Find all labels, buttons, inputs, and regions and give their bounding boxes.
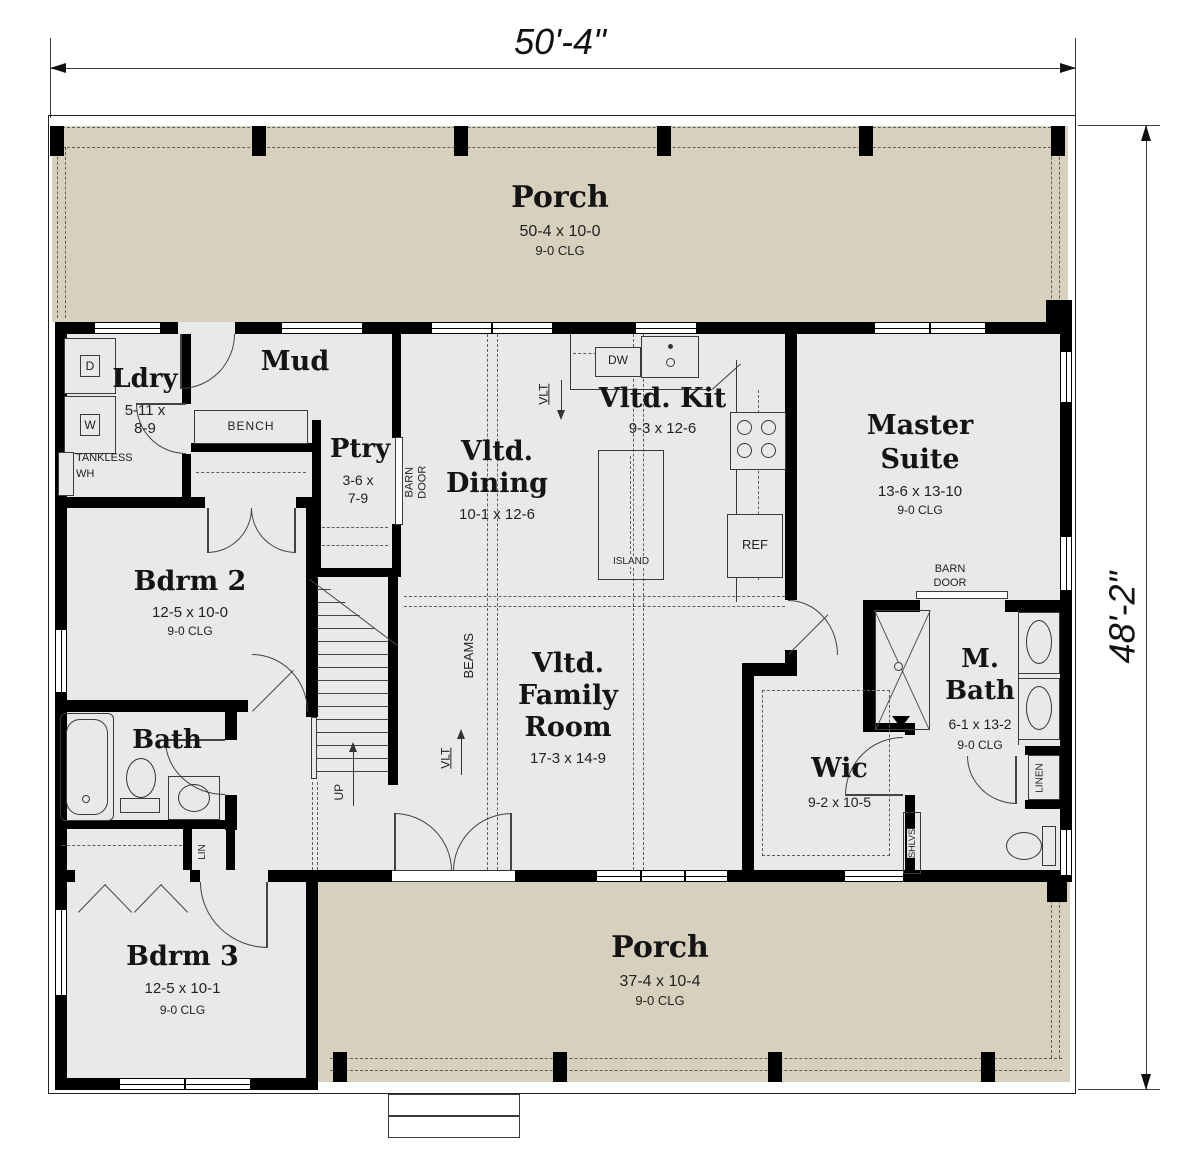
tankless-water-heater [58,452,74,496]
room-size-master: 13-6 x 13-10 [855,483,985,501]
burner-icon [737,420,752,435]
barn-door-label-1: BARN [403,466,416,499]
door-leaf [394,813,396,871]
wall [985,322,1072,334]
door-leaf [266,882,268,948]
porch-post [981,1052,995,1082]
window-mullion [184,1078,186,1090]
door-leaf [510,813,512,871]
wall [225,712,237,740]
wall [1060,322,1072,352]
island-label: ISLAND [599,556,663,567]
room-size-bdrm3: 12-5 x 10-1 [110,980,255,998]
step [388,1094,520,1116]
range [730,412,786,470]
stair-rail [311,717,317,779]
shower-head-icon [892,716,910,728]
porch-post [768,1052,782,1082]
wall [696,322,875,334]
window [55,910,67,995]
wall [903,870,1072,882]
vault-line [633,334,634,870]
refrigerator-label: REF [727,537,783,552]
room-label-mud: Mud [235,348,355,376]
arrow-down-icon [1141,1074,1151,1090]
room-size-ldry-2: 8-9 [95,420,195,438]
room-size-ptry-1: 3-6 x [318,472,398,489]
wall [55,820,235,829]
wall [388,568,398,785]
beam-line [404,606,785,607]
room-clg-mbath: 9-0 CLG [934,738,1026,752]
room-size-ldry-1: 5-11 x [95,402,195,420]
shower-drain [894,662,903,671]
window [1060,537,1072,590]
room-clg-master: 9-0 CLG [855,503,985,517]
vault-line [497,334,498,870]
floor-plan: 50'-4" 48'-2" [0,0,1200,1173]
room-size-mbath: 6-1 x 13-2 [930,716,1030,733]
dashed-line [1059,147,1060,318]
dashed-line [57,127,1061,128]
wall [1060,402,1072,537]
window-mullion [929,322,931,334]
room-label-family-3: Room [503,714,633,742]
dashed-line [317,782,318,870]
wall [268,870,392,882]
room-label-ptry: Ptry [320,436,400,463]
step [388,1116,520,1138]
door-leaf [207,508,209,553]
wall [55,995,67,1090]
door-leaf [1015,756,1017,804]
room-size-family: 17-3 x 14-9 [496,750,640,768]
wall [515,870,597,882]
door-threshold [392,870,515,882]
wall [190,870,200,882]
vlt-arrow-icon [557,410,565,420]
porch-post [1046,300,1072,322]
vlt-label: VLT [439,747,453,768]
room-label-family-2: Family [496,682,640,710]
room-label-wic: Wic [797,755,882,783]
wall [182,454,191,497]
beams-label: BEAMS [461,633,477,679]
dashed-line [330,1058,1062,1059]
room-label-porch-top: Porch [460,182,660,214]
vlt-label-wrap: VLT [533,370,555,418]
extension-line [50,38,51,118]
tankless-label-2: WH [76,468,166,480]
wall [55,870,75,882]
barn-door-panel [916,591,1008,599]
room-label-mbath-2: Bath [935,678,1025,705]
vault-line [643,334,644,870]
tankless-label-1: TANKLESS [76,452,166,464]
sink-drain [666,358,675,367]
window-mullion [640,870,642,882]
arrow-left-icon [50,63,66,73]
room-label-bath: Bath [122,727,212,754]
vlt-arrow-line [461,737,462,775]
lin-label: LIN [197,844,209,860]
up-arrow-line [353,750,354,806]
window [636,322,696,334]
linen-label: LINEN [1035,763,1047,792]
porch-post [252,126,266,156]
porch-post [553,1052,567,1082]
wall [235,322,282,334]
burner-icon [761,443,776,458]
sink [178,784,210,812]
vlt-arrow-icon [457,729,465,739]
closet-rod [196,472,306,473]
window [1060,352,1072,402]
window [55,630,67,692]
window [845,870,903,882]
wall [306,882,318,1090]
bench-label: BENCH [194,419,308,433]
vlt-arrow-line [561,380,562,414]
wall [160,322,178,334]
window [597,870,727,882]
room-label-master-1: Master [855,412,985,440]
window [95,322,160,334]
porch-post [657,126,671,156]
room-clg-bdrm2: 9-0 CLG [120,624,260,638]
room-clg-bdrm3: 9-0 CLG [110,1003,255,1017]
burner-icon [737,443,752,458]
barn-door-label-2: DOOR [920,577,980,589]
wall [1060,875,1072,882]
window [1060,830,1072,875]
wall [226,829,235,870]
wall [1005,600,1060,612]
dimension-height: 48'-2" [1100,572,1143,664]
room-size-kitchen: 9-3 x 12-6 [590,420,735,438]
room-label-dining-2: Dining [437,470,557,498]
lin-label-wrap: LIN [193,833,213,871]
window-mullion [491,322,493,334]
porch-post [859,126,873,156]
vault-line [487,334,488,870]
linen-label-wrap: LINEN [1031,752,1051,804]
porch-post [50,126,64,156]
room-size-ptry-2: 7-9 [318,490,398,507]
wall [392,334,401,438]
barn-door-label-wrap: BARN DOOR [398,438,434,526]
toilet [1006,832,1042,860]
extension-line [1075,38,1076,118]
arrow-up-icon [1141,125,1151,141]
porch-post [1051,126,1065,156]
window [282,322,362,334]
room-label-porch-bottom: Porch [570,932,750,964]
toilet-tank [120,798,160,813]
dashed-line [330,1070,1062,1071]
dimension-line-top [50,68,1076,69]
room-size-wic: 9-2 x 10-5 [792,794,887,811]
sink [1026,620,1052,664]
dimension-width: 50'-4" [430,20,690,63]
room-label-kitchen: Vltd. Kit [590,385,735,413]
vlt-label: VLT [537,383,551,404]
toilet [126,758,156,798]
up-label: UP [332,784,346,801]
room-size-bdrm2: 12-5 x 10-0 [120,604,260,622]
burner-icon [761,420,776,435]
porch-post [1047,882,1067,902]
barn-door-label-2: DOOR [416,466,429,499]
wall [1060,590,1072,830]
wall [742,663,754,882]
arrow-right-icon [1060,63,1076,73]
wall [191,443,321,452]
toilet-tank [1042,826,1056,866]
tub-drain [82,795,90,803]
kitchen-sink [641,336,699,378]
wall [55,497,205,508]
room-label-bdrm3: Bdrm 3 [110,943,255,971]
faucet-icon [668,344,673,349]
door-leaf [294,508,296,553]
wall [55,700,248,712]
dashed-line [1051,890,1052,1058]
up-label-wrap: UP [328,772,350,812]
room-clg-porch-top: 9-0 CLG [460,243,660,259]
beam-line [404,596,785,597]
wall [362,322,432,334]
shelf-line [322,545,388,546]
beams-label-wrap: BEAMS [453,620,485,692]
closet-rod [62,845,182,846]
room-label-mbath-1: M. [945,646,1015,673]
wall [785,334,797,600]
vlt-label-wrap: VLT [435,734,457,782]
wall [183,829,192,870]
up-arrow-icon [349,742,357,752]
room-clg-porch-bottom: 9-0 CLG [570,993,750,1009]
wall [306,568,401,577]
counter-edge [570,334,571,390]
wall [552,322,636,334]
porch-post [333,1052,347,1082]
wall [55,1078,120,1090]
dimension-height-wrap: 48'-2" [1096,545,1148,691]
room-label-dining-1: Vltd. [437,438,557,466]
room-label-master-2: Suite [855,446,985,474]
dashed-line [312,782,313,870]
dashed-line [1059,890,1060,1058]
room-label-ldry: Ldry [95,366,195,393]
dashed-line [57,147,1061,148]
shlvs-label: SHLVS [907,829,918,858]
room-size-dining: 10-1 x 12-6 [437,506,557,524]
barn-door-label-1: BARN [920,563,980,575]
shelf-line [322,527,388,528]
room-label-bdrm2: Bdrm 2 [120,568,260,596]
room-size-porch-bottom: 37-4 x 10-4 [570,972,750,991]
dishwasher-label: DW [595,353,641,367]
dashed-line [65,147,66,318]
porch-post [454,126,468,156]
shlvs-label-wrap: SHLVS [903,813,921,873]
room-label-family-1: Vltd. [508,650,628,678]
room-size-porch-top: 50-4 x 10-0 [460,222,660,241]
window-mullion [684,870,686,882]
